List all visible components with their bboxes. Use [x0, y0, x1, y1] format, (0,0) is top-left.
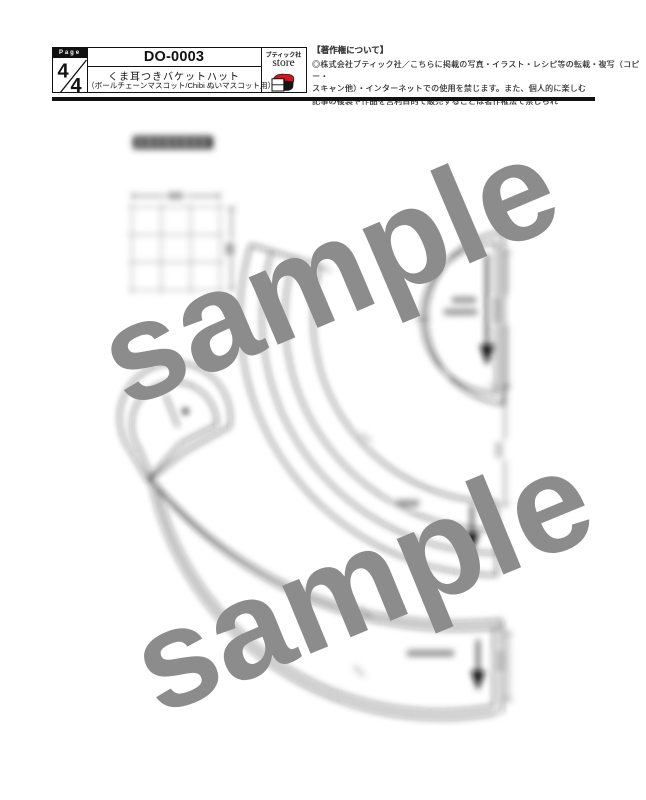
svg-text:4: 4 [58, 60, 70, 82]
svg-text:4: 4 [71, 75, 83, 92]
svg-text:sample: sample [111, 419, 613, 744]
